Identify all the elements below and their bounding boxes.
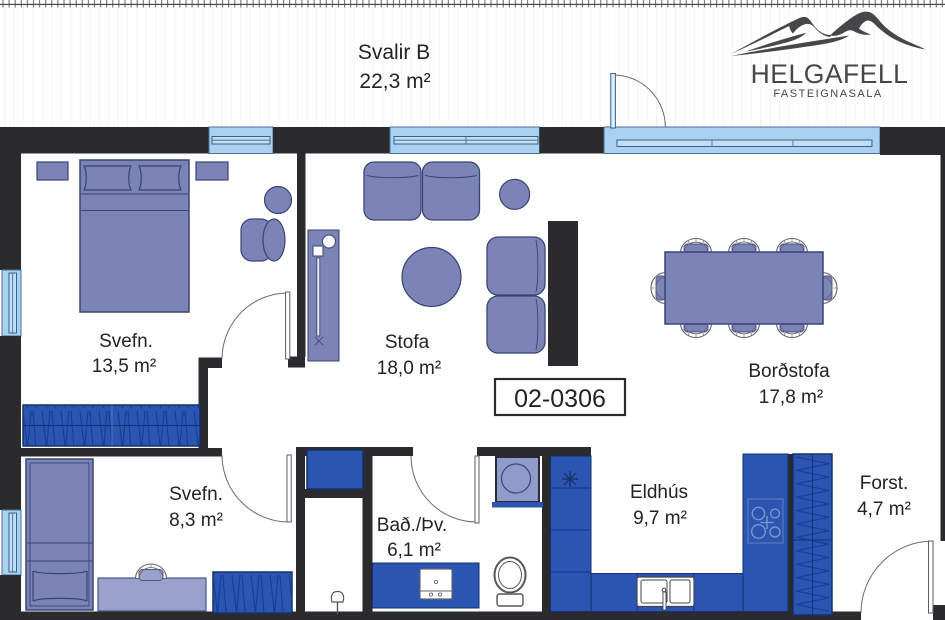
- svg-text:9,7 m²: 9,7 m²: [633, 508, 687, 529]
- svg-text:Svalir B: Svalir B: [358, 41, 430, 64]
- svg-text:Svefn.: Svefn.: [169, 484, 223, 505]
- svg-text:18,0 m²: 18,0 m²: [377, 358, 441, 379]
- svg-text:22,3 m²: 22,3 m²: [359, 70, 430, 93]
- svg-text:8,3 m²: 8,3 m²: [169, 510, 223, 531]
- svg-text:Eldhús: Eldhús: [630, 482, 688, 503]
- svg-text:FASTEIGNASALA: FASTEIGNASALA: [773, 88, 882, 100]
- svg-text:4,7 m²: 4,7 m²: [857, 499, 911, 520]
- svg-text:17,8 m²: 17,8 m²: [759, 387, 823, 408]
- svg-text:13,5 m²: 13,5 m²: [92, 356, 156, 377]
- svg-text:Bað./Þv.: Bað./Þv.: [377, 515, 447, 536]
- svg-text:02-0306: 02-0306: [514, 385, 606, 413]
- svg-text:Borðstofa: Borðstofa: [748, 361, 830, 382]
- svg-text:6,1 m²: 6,1 m²: [387, 540, 441, 561]
- svg-text:HELGAFELL: HELGAFELL: [751, 59, 909, 89]
- svg-text:Svefn.: Svefn.: [99, 331, 153, 352]
- svg-text:Stofa: Stofa: [385, 332, 430, 353]
- svg-text:Forst.: Forst.: [860, 473, 909, 494]
